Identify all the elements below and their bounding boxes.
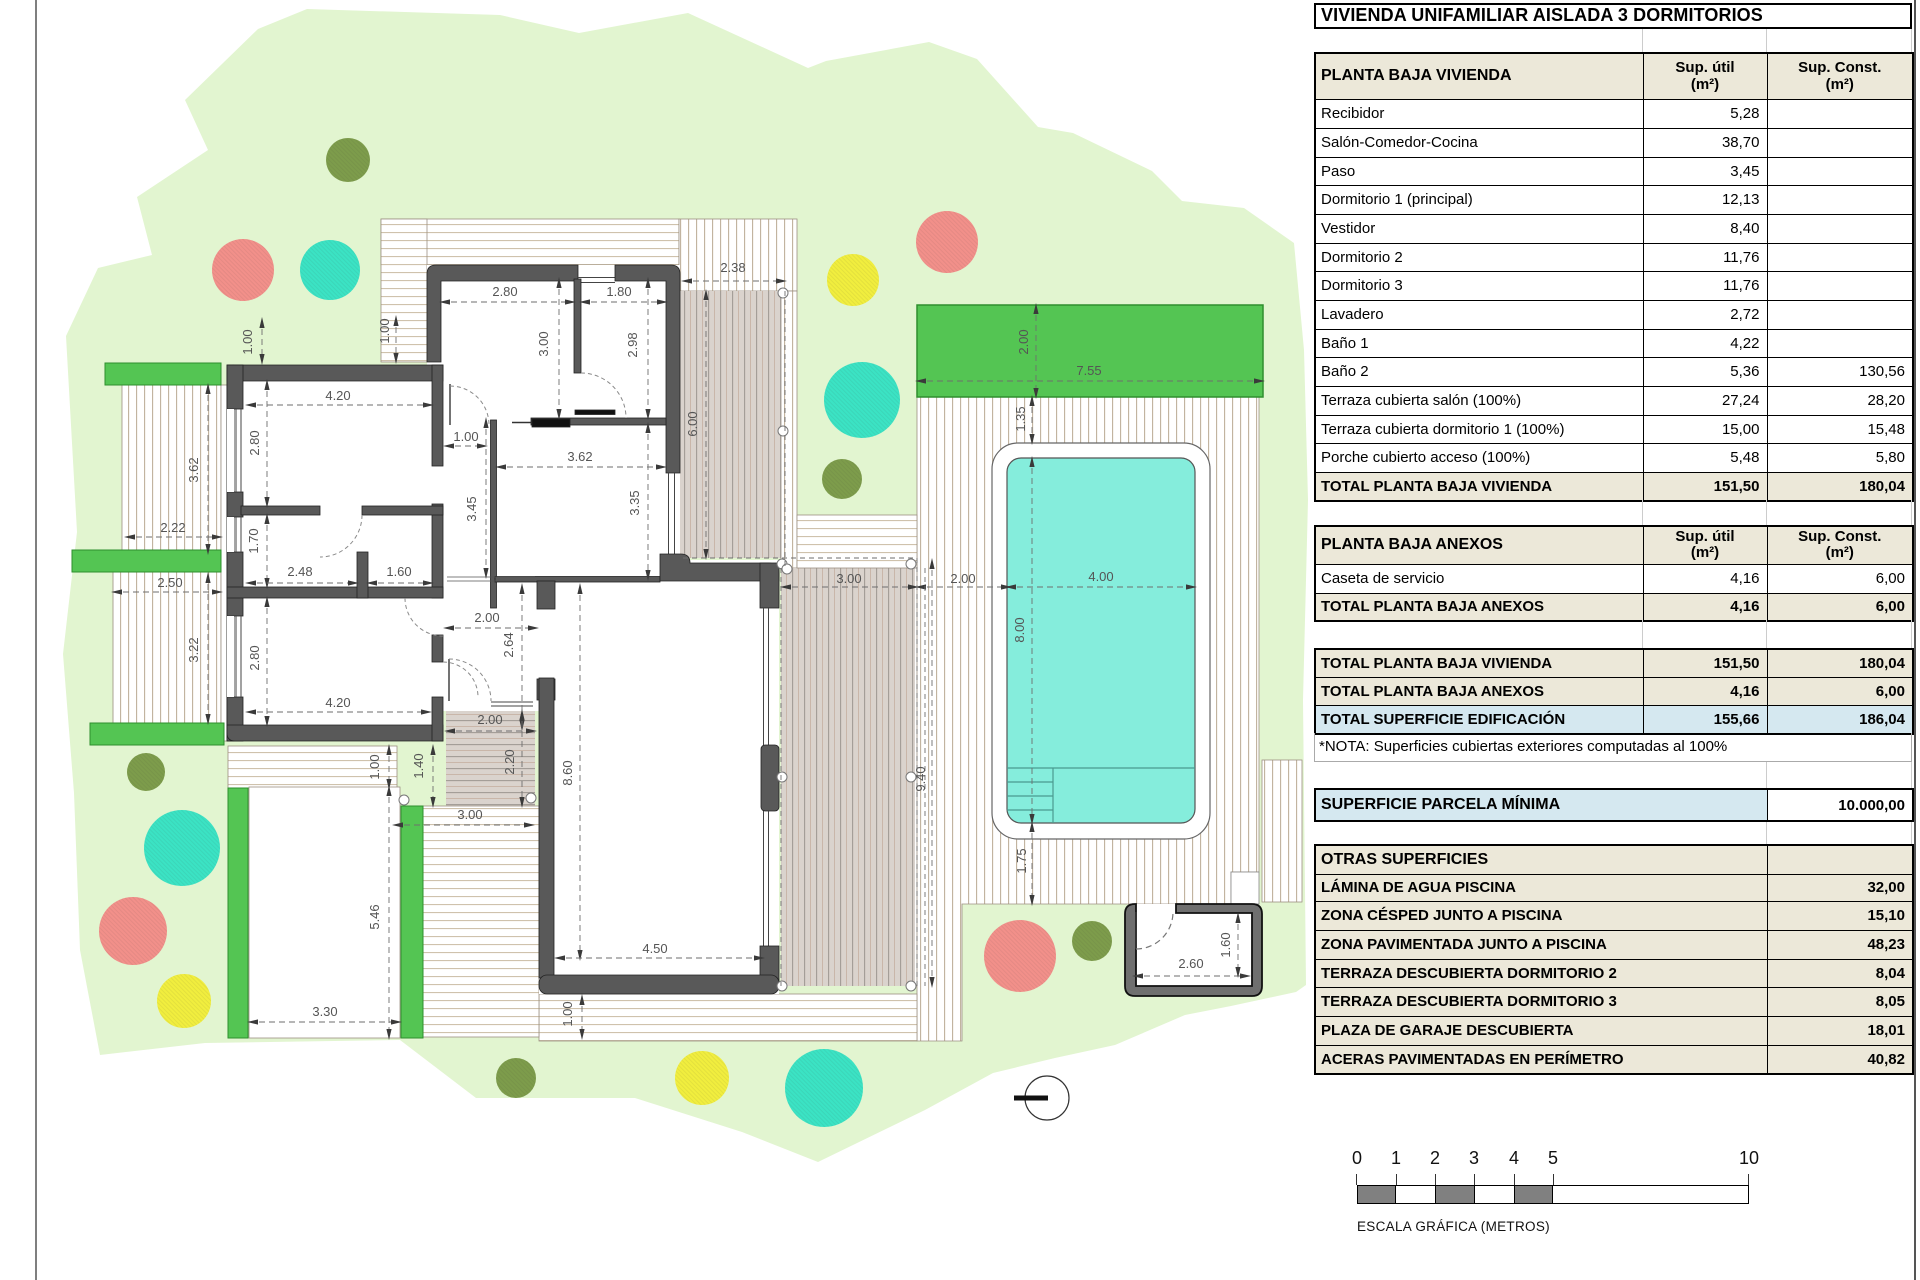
svg-text:1.75: 1.75 — [1014, 848, 1029, 873]
svg-text:2.00: 2.00 — [477, 712, 502, 727]
svg-text:1.35: 1.35 — [1013, 406, 1028, 431]
svg-text:2.80: 2.80 — [247, 645, 262, 670]
svg-text:1.00: 1.00 — [240, 329, 255, 354]
svg-text:1.00: 1.00 — [453, 429, 478, 444]
svg-text:7.55: 7.55 — [1076, 363, 1101, 378]
svg-text:2.80: 2.80 — [247, 430, 262, 455]
svg-text:2.64: 2.64 — [501, 632, 516, 657]
svg-text:1.00: 1.00 — [377, 318, 392, 343]
svg-text:3.00: 3.00 — [836, 571, 861, 586]
svg-text:3.30: 3.30 — [312, 1004, 337, 1019]
svg-text:8.00: 8.00 — [1012, 617, 1027, 642]
svg-text:2.50: 2.50 — [157, 575, 182, 590]
svg-text:4.20: 4.20 — [325, 388, 350, 403]
svg-text:1.60: 1.60 — [1218, 932, 1233, 957]
svg-text:2.20: 2.20 — [502, 749, 517, 774]
svg-text:5.46: 5.46 — [367, 904, 382, 929]
svg-text:2.00: 2.00 — [950, 571, 975, 586]
svg-text:1.40: 1.40 — [411, 753, 426, 778]
svg-text:8.60: 8.60 — [560, 760, 575, 785]
svg-text:3.22: 3.22 — [186, 637, 201, 662]
svg-text:3.00: 3.00 — [536, 331, 551, 356]
svg-text:1.00: 1.00 — [560, 1001, 575, 1026]
svg-text:9.40: 9.40 — [913, 766, 928, 791]
svg-text:2.98: 2.98 — [625, 332, 640, 357]
svg-text:3.62: 3.62 — [567, 449, 592, 464]
svg-text:3.45: 3.45 — [464, 496, 479, 521]
svg-text:1.70: 1.70 — [246, 528, 261, 553]
svg-text:1.60: 1.60 — [386, 564, 411, 579]
svg-text:2.22: 2.22 — [160, 520, 185, 535]
svg-text:2.60: 2.60 — [1178, 956, 1203, 971]
svg-text:2.48: 2.48 — [287, 564, 312, 579]
svg-text:2.80: 2.80 — [492, 284, 517, 299]
svg-text:3.00: 3.00 — [457, 807, 482, 822]
svg-text:4.20: 4.20 — [325, 695, 350, 710]
svg-text:2.00: 2.00 — [474, 610, 499, 625]
svg-text:4.00: 4.00 — [1088, 569, 1113, 584]
svg-text:4.50: 4.50 — [642, 941, 667, 956]
svg-text:3.35: 3.35 — [627, 490, 642, 515]
svg-text:6.00: 6.00 — [685, 411, 700, 436]
svg-text:1.00: 1.00 — [367, 754, 382, 779]
svg-text:1.80: 1.80 — [606, 284, 631, 299]
svg-text:3.62: 3.62 — [186, 457, 201, 482]
svg-text:2.38: 2.38 — [720, 260, 745, 275]
svg-text:2.00: 2.00 — [1016, 329, 1031, 354]
